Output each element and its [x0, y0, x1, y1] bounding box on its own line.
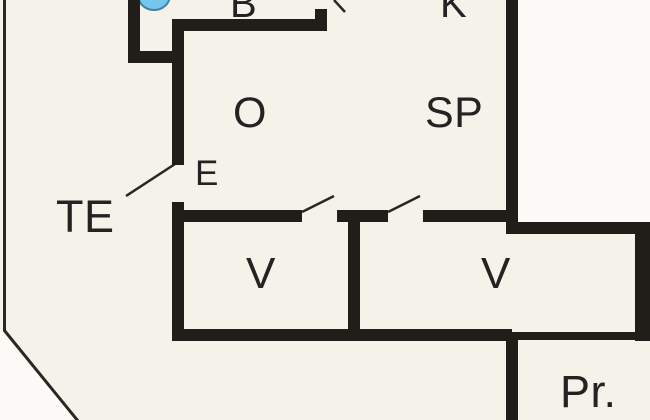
wall-extension-top — [518, 222, 650, 234]
wall-bedrooms-bottom — [172, 329, 512, 341]
room-label-v2: V — [481, 252, 511, 296]
wall-livingroom-left-upper — [172, 19, 184, 165]
room-label-o: O — [233, 92, 267, 135]
room-label-pr: Pr. — [560, 369, 617, 414]
wall-storage-left — [506, 332, 518, 420]
room-label-e: E — [195, 156, 219, 191]
wall-bathroom-door-nub — [315, 9, 327, 20]
wall-right-outer — [506, 0, 518, 234]
wall-bedroom-divider — [348, 210, 360, 341]
room-label-k: K — [440, 0, 467, 24]
sink-icon — [138, 0, 170, 10]
wall-corridor-segment-1 — [172, 210, 302, 222]
wall-corridor-segment-3 — [423, 210, 506, 222]
room-label-te: TE — [56, 194, 115, 239]
room-label-sp: SP — [425, 92, 483, 135]
entry-door-swing-line — [126, 164, 175, 196]
floor-plan: B K O SP E TE V V Pr. — [0, 0, 650, 420]
wall-storage-top — [506, 332, 650, 340]
room-label-v1: V — [246, 252, 276, 296]
room-label-b: B — [230, 0, 257, 24]
wall-corridor-segment-2 — [337, 210, 388, 222]
wall-bedroom1-left — [172, 210, 184, 341]
kitchen-door-swing-line — [334, 0, 345, 12]
door-swing-line-v1 — [302, 196, 334, 212]
door-swing-line-v2 — [388, 196, 420, 212]
wall-bedroom2-right — [635, 222, 650, 341]
